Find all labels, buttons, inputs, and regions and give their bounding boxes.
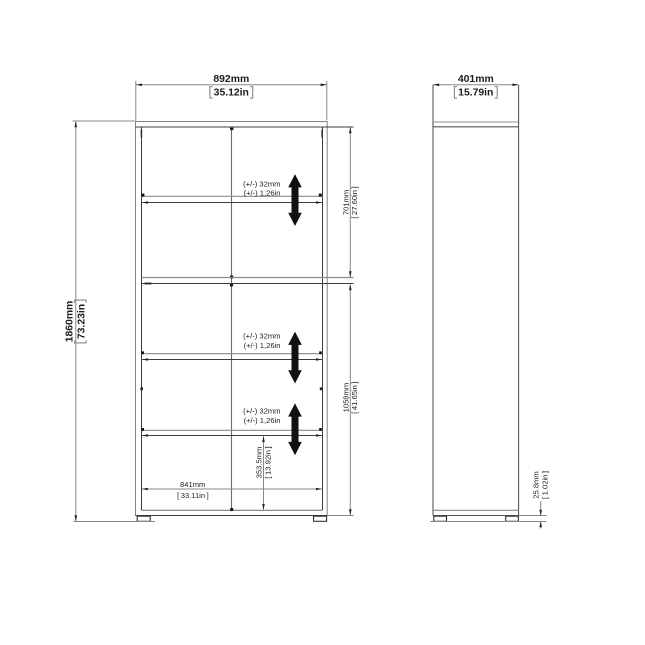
svg-text:[ 41.65in ]: [ 41.65in ] — [350, 382, 359, 414]
svg-text:401mm: 401mm — [458, 74, 494, 85]
svg-text:15.79in: 15.79in — [458, 88, 493, 99]
svg-text:701mm: 701mm — [341, 190, 350, 215]
svg-text:353.5mm: 353.5mm — [255, 447, 264, 479]
svg-text:892mm: 892mm — [213, 74, 249, 85]
svg-text:(+/-) 1,26in: (+/-) 1,26in — [244, 341, 281, 350]
svg-text:[ 1.02in ]: [ 1.02in ] — [541, 471, 550, 499]
svg-text:841mm: 841mm — [180, 480, 205, 489]
svg-text:73.23in: 73.23in — [77, 304, 88, 339]
svg-text:35.12in: 35.12in — [214, 88, 249, 99]
svg-text:[ 27.60in ]: [ 27.60in ] — [350, 186, 359, 218]
svg-text:25.8mm: 25.8mm — [532, 471, 541, 498]
svg-text:[ 33.11in ]: [ 33.11in ] — [177, 491, 209, 500]
svg-text:[ 13.92in ]: [ 13.92in ] — [263, 446, 272, 478]
svg-text:(+/-) 32mm: (+/-) 32mm — [243, 407, 280, 416]
svg-text:1860mm: 1860mm — [65, 301, 76, 343]
svg-text:(+/-) 1,26in: (+/-) 1,26in — [244, 188, 281, 197]
svg-text:(+/-) 32mm: (+/-) 32mm — [243, 332, 280, 341]
svg-text:1058mm: 1058mm — [341, 383, 350, 413]
svg-text:(+/-) 32mm: (+/-) 32mm — [243, 179, 280, 188]
svg-text:(+/-) 1,26in: (+/-) 1,26in — [244, 416, 281, 425]
